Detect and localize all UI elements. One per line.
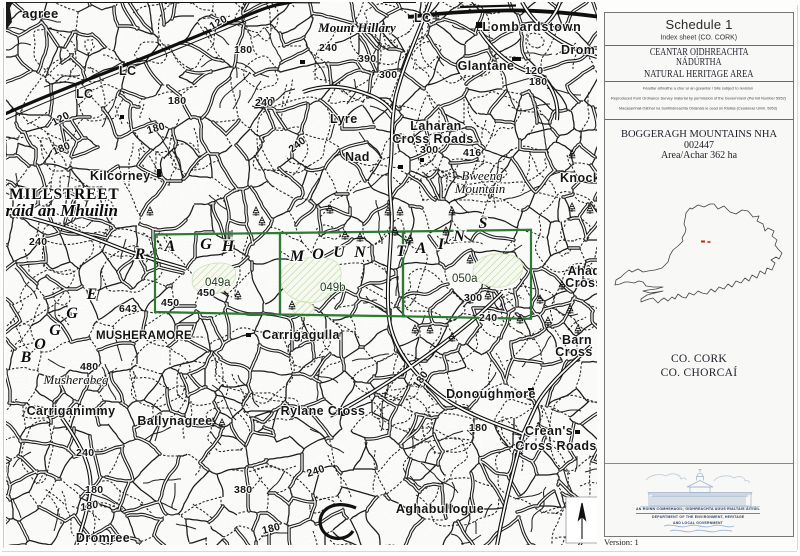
svg-text:O: O [34, 336, 46, 353]
svg-text:Nad: Nad [345, 150, 370, 164]
svg-text:390: 390 [358, 53, 376, 65]
svg-text:049b: 049b [320, 282, 346, 294]
svg-text:Kilcorney: Kilcorney [90, 169, 151, 183]
svg-text:Sráid an Mhuilin: Sráid an Mhuilin [0, 201, 118, 220]
svg-text:O: O [312, 246, 324, 263]
svg-text:B: B [20, 349, 32, 366]
svg-text:Ballynagree: Ballynagree [137, 414, 212, 428]
svg-text:180: 180 [85, 484, 103, 496]
svg-text:N: N [452, 228, 466, 245]
svg-text:Carriganimmy: Carriganimmy [27, 404, 116, 418]
svg-text:300: 300 [420, 144, 438, 156]
svg-text:Musherabeg: Musherabeg [43, 372, 109, 387]
svg-text:416: 416 [463, 147, 481, 159]
svg-text:N: N [353, 244, 367, 261]
svg-text:Drom: Drom [561, 43, 595, 57]
svg-text:Glantane: Glantane [458, 59, 515, 73]
svg-text:S: S [479, 215, 488, 232]
svg-text:050a: 050a [452, 273, 478, 285]
svg-text:R: R [134, 246, 146, 263]
svg-text:G: G [200, 236, 212, 253]
svg-text:180: 180 [529, 76, 547, 88]
svg-text:A: A [415, 240, 427, 257]
svg-text:Aghabullogue: Aghabullogue [396, 502, 484, 516]
svg-text:Cross: Cross [555, 345, 592, 359]
svg-text:Knock: Knock [560, 171, 600, 185]
svg-text:180: 180 [234, 44, 252, 56]
svg-text:240: 240 [479, 312, 497, 324]
svg-text:E: E [86, 286, 98, 303]
svg-text:G: G [66, 305, 78, 322]
svg-text:Laharan: Laharan [410, 119, 461, 133]
svg-text:240: 240 [319, 42, 337, 54]
svg-text:Crean's: Crean's [525, 424, 573, 438]
svg-text:Cross: Cross [565, 276, 602, 290]
svg-text:Mount Hillary: Mount Hillary [317, 20, 396, 35]
svg-text:Dromree: Dromree [76, 531, 130, 545]
svg-text:240: 240 [255, 97, 273, 109]
svg-text:LC: LC [119, 64, 136, 78]
svg-text:480: 480 [80, 361, 98, 373]
svg-text:U: U [333, 244, 346, 261]
svg-text:180: 180 [469, 422, 487, 434]
svg-text:Rylane Cross: Rylane Cross [281, 404, 366, 418]
svg-text:LC: LC [76, 87, 93, 101]
svg-text:450: 450 [197, 287, 215, 299]
svg-text:Cross Roads: Cross Roads [515, 439, 597, 453]
svg-text:Lyre: Lyre [330, 112, 358, 126]
svg-text:G: G [49, 322, 61, 339]
svg-text:180: 180 [168, 95, 186, 107]
svg-text:240: 240 [29, 236, 47, 248]
svg-text:643: 643 [119, 303, 137, 315]
svg-text:450: 450 [161, 297, 179, 309]
svg-text:T: T [396, 243, 407, 260]
svg-text:I: I [437, 236, 445, 253]
svg-text:Donoughmore: Donoughmore [446, 387, 536, 401]
svg-text:agree: agree [22, 6, 59, 21]
svg-text:LC: LC [414, 11, 431, 25]
svg-text:A: A [164, 238, 176, 255]
svg-text:300: 300 [379, 69, 397, 81]
svg-text:M: M [289, 248, 305, 265]
svg-text:MUSHERAMORE: MUSHERAMORE [96, 330, 192, 342]
svg-text:380: 380 [234, 484, 252, 496]
svg-text:Mountain: Mountain [454, 181, 506, 196]
svg-text:H: H [221, 238, 235, 255]
svg-text:Lombardstown: Lombardstown [482, 20, 581, 34]
svg-text:Carrigagulla: Carrigagulla [262, 328, 340, 342]
svg-text:240: 240 [76, 447, 94, 459]
svg-text:300: 300 [464, 292, 482, 304]
